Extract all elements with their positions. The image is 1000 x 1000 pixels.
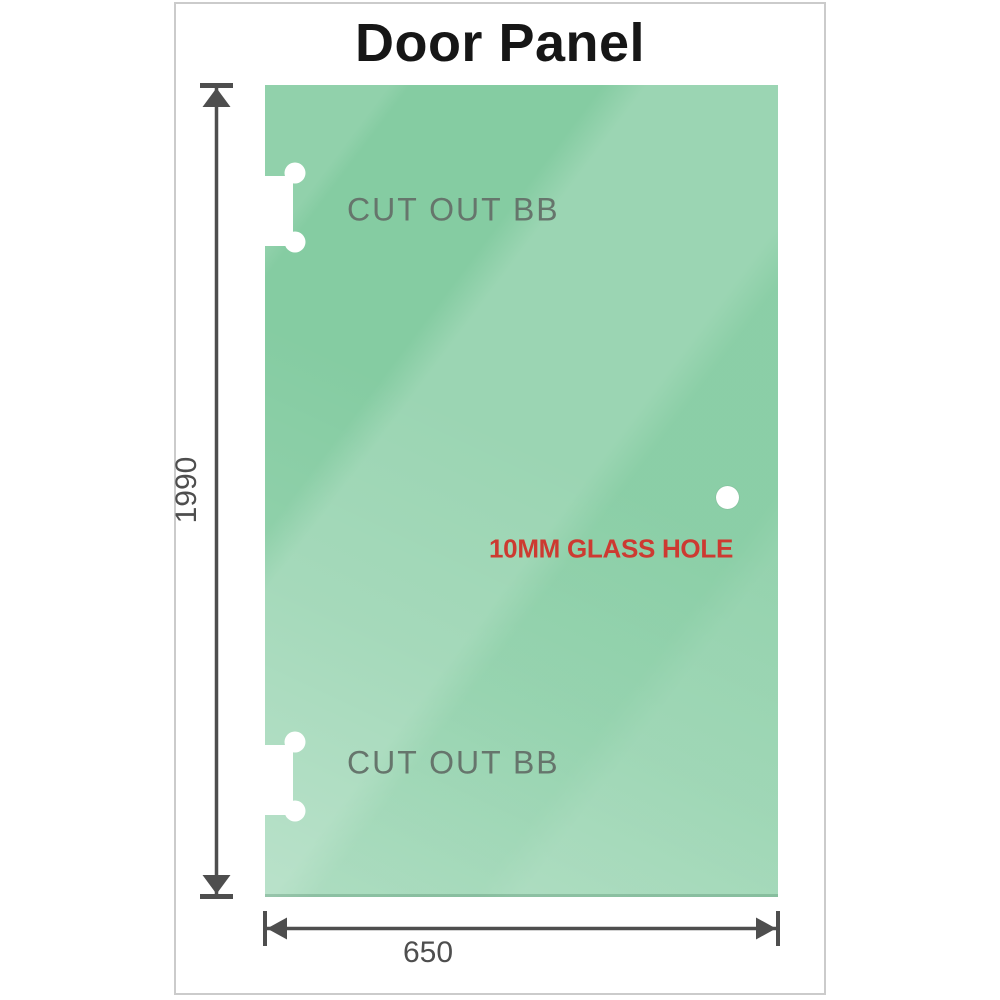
door-panel-diagram: Door Panel CUT OUT BB CUT OUT BB 10MM GL… <box>0 0 1000 1000</box>
height-dimension-label: 1990 <box>170 457 204 524</box>
glass-hole <box>716 486 739 509</box>
width-dimension-label: 650 <box>403 936 453 970</box>
cutout-top-label: CUT OUT BB <box>347 192 560 229</box>
hinge-cutout-top <box>258 160 318 255</box>
hinge-cutout-bottom <box>258 729 318 824</box>
glass-hole-label: 10MM GLASS HOLE <box>489 534 733 565</box>
diagram-title: Door Panel <box>174 12 826 74</box>
cutout-bottom-label: CUT OUT BB <box>347 745 560 782</box>
